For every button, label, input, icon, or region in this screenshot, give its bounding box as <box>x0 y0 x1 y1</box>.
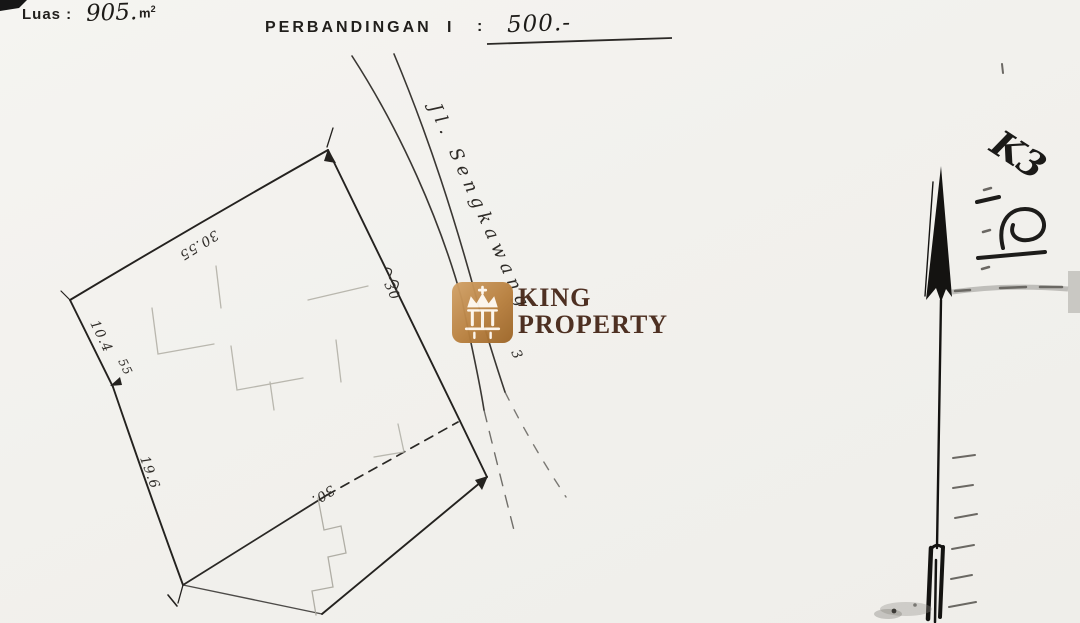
area-unit: m2 <box>139 4 156 20</box>
handwritten-mark-loop <box>977 197 1045 258</box>
dimension-arrowheads <box>110 149 488 490</box>
dim-left-lower: 19.6 <box>136 454 163 491</box>
scan-smudges <box>874 287 1068 619</box>
scale-label: PERBANDINGAN <box>265 19 432 37</box>
north-arrow-icon <box>925 166 952 622</box>
dim-road-edge: 30 <box>380 279 403 303</box>
dim-top-edge: 30.55 <box>176 227 222 264</box>
brand-text: KING PROPERTY <box>518 284 668 338</box>
street-annotation: 3 <box>507 347 526 362</box>
scale-value: 500.- <box>507 10 572 38</box>
scale-index: I <box>447 19 451 37</box>
king-property-watermark: KING PROPERTY <box>452 282 712 346</box>
dim-left-bend: 55 <box>115 356 135 378</box>
logo-tile <box>452 282 513 343</box>
scale-colon: : <box>477 18 482 36</box>
brand-line-2: PROPERTY <box>518 311 668 338</box>
handwritten-mark-k3: K3 <box>982 122 1053 188</box>
scanned-site-plan-document: 30.55 10.4 55 19.6 30. 30 Jl. Sengkawang… <box>0 0 1080 623</box>
building-footprint <box>152 266 404 615</box>
crown-icon <box>452 282 513 343</box>
scale-underline <box>487 38 672 44</box>
scan-edge-artifact <box>1068 271 1080 313</box>
area-label: Luas : <box>22 6 72 23</box>
dim-left-upper: 10.4 <box>86 318 115 356</box>
area-value: 905. <box>86 0 138 27</box>
brand-line-1: KING <box>518 284 668 311</box>
